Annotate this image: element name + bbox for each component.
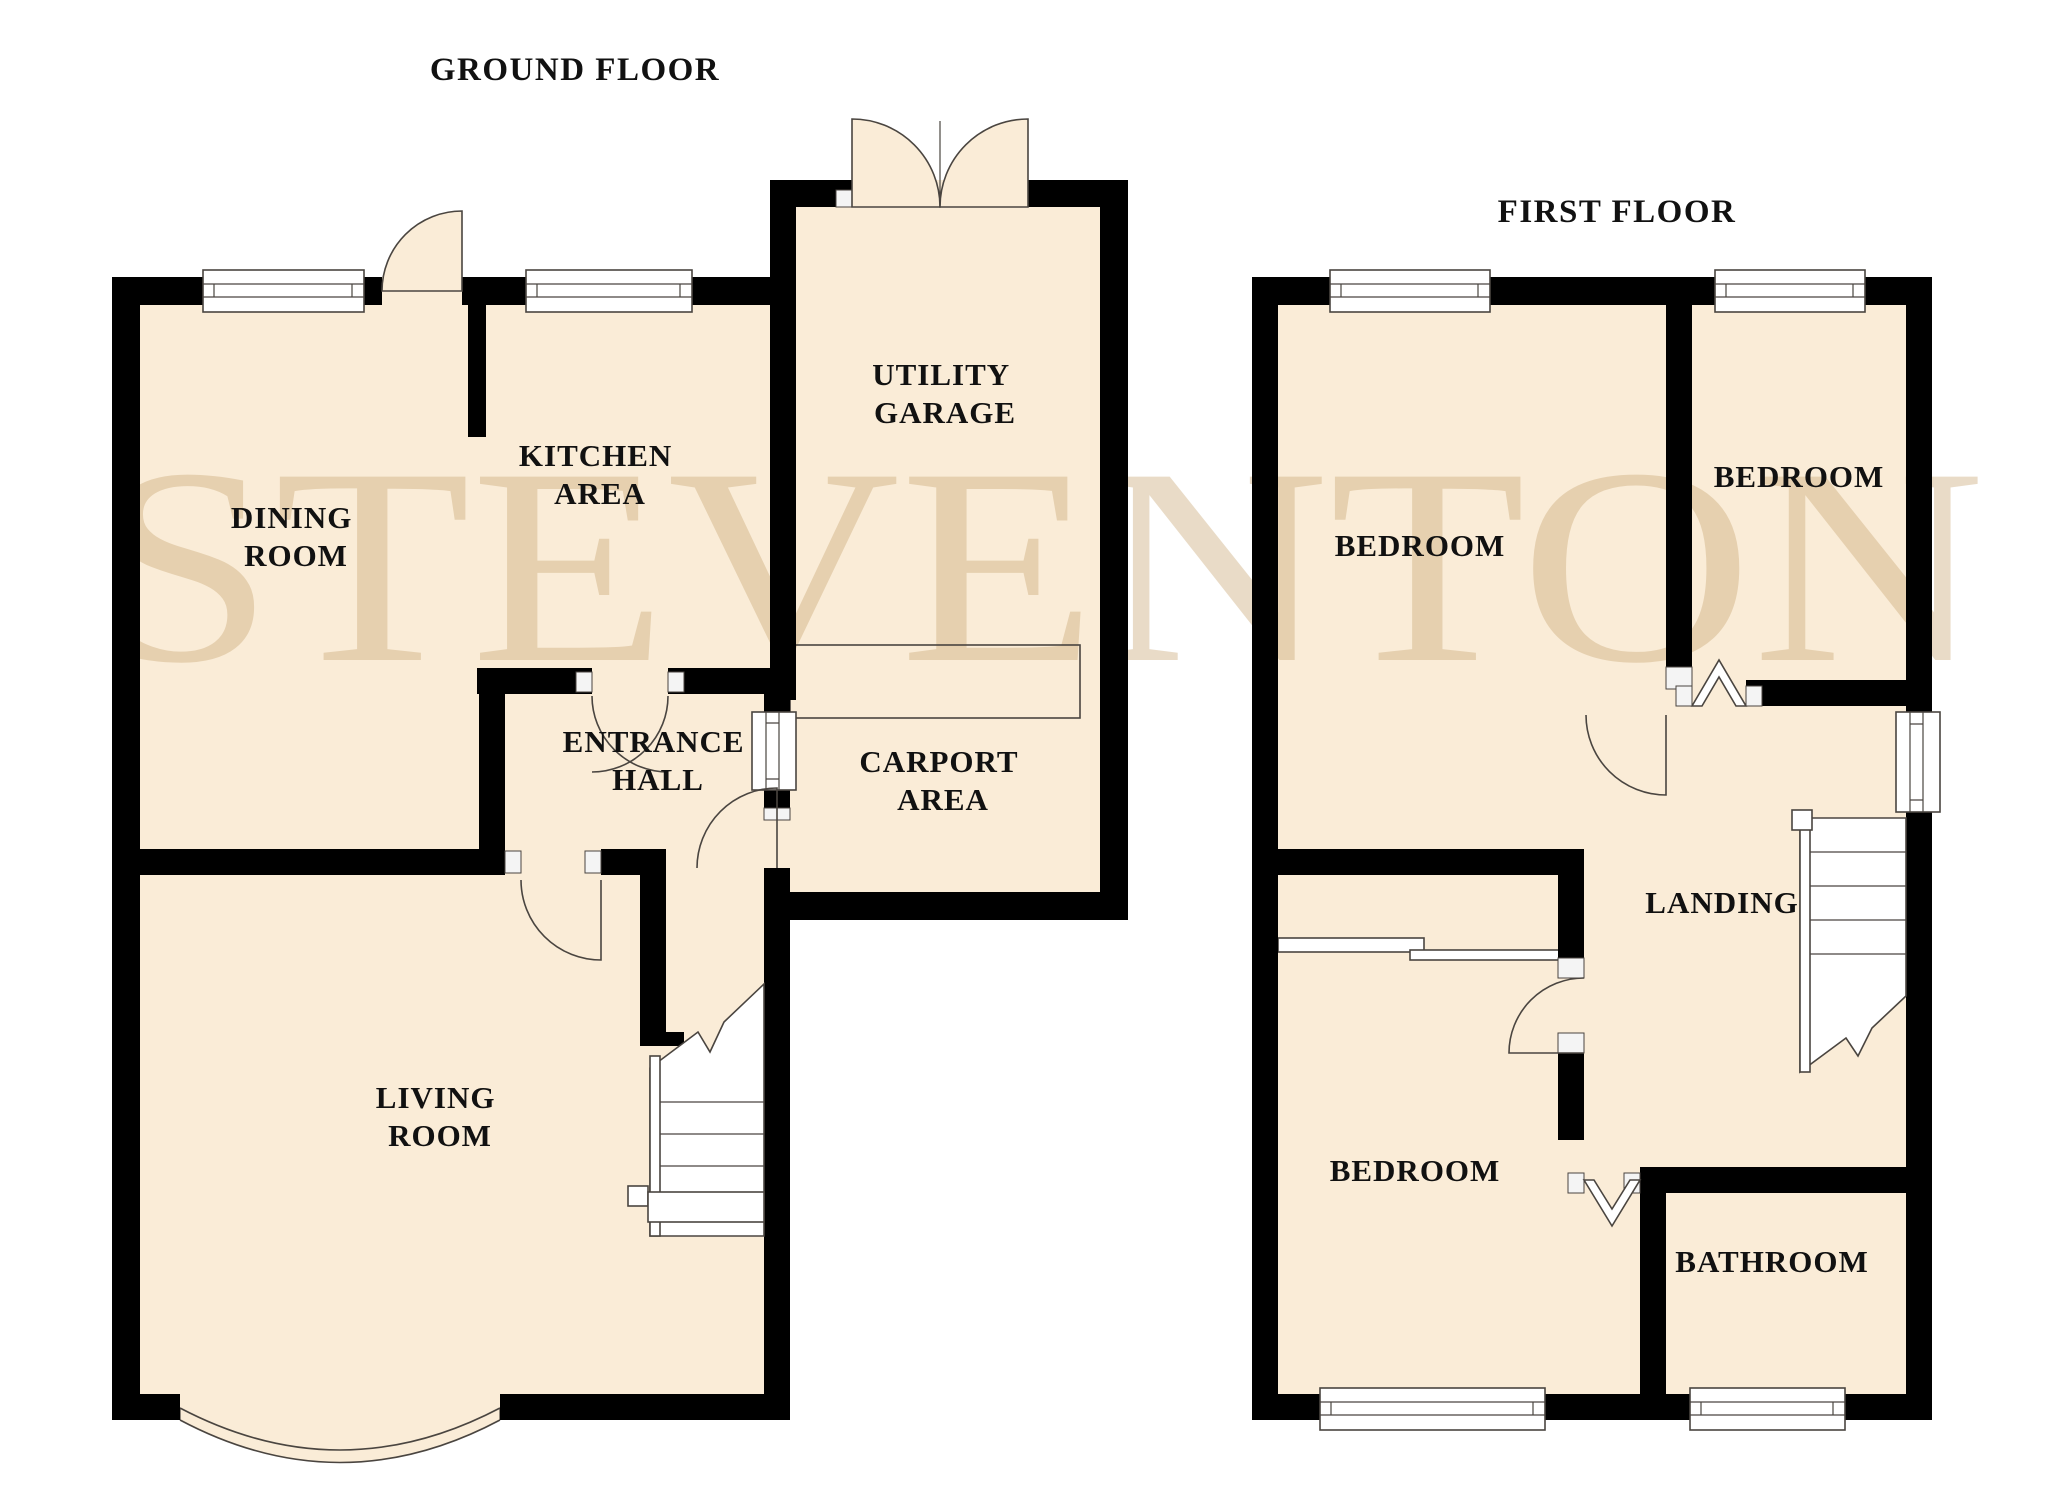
- window-dining-top: [203, 270, 364, 312]
- window-hall-front: [752, 712, 796, 790]
- wall: [1252, 849, 1558, 875]
- room-label-bedroom-top-right: BEDROOM: [1714, 459, 1885, 494]
- wall: [112, 849, 505, 875]
- wall: [477, 668, 592, 694]
- wall: [479, 694, 505, 875]
- first-floor-title: FIRST FLOOR: [1498, 194, 1737, 230]
- fill-bay-window: [180, 1394, 500, 1463]
- stair-rail: [1800, 826, 1810, 1072]
- jamb: [576, 672, 592, 692]
- jamb: [585, 851, 601, 873]
- window-kitchen-top: [526, 270, 692, 312]
- window-bedroom-tl-top: [1330, 270, 1490, 312]
- floorplan-drawing: STEVENTON: [0, 0, 2048, 1489]
- wall: [1640, 1167, 1666, 1420]
- wall: [462, 277, 526, 305]
- wall: [112, 1394, 180, 1420]
- window-bedroom-tr-top: [1715, 270, 1865, 312]
- wall: [770, 180, 796, 700]
- wall: [1490, 277, 1715, 305]
- wall: [1746, 680, 1906, 706]
- wall: [1640, 1167, 1906, 1193]
- wall: [640, 875, 666, 1046]
- wall: [601, 849, 666, 875]
- jamb: [1558, 1033, 1584, 1053]
- wall: [1558, 1053, 1584, 1140]
- jamb: [1746, 686, 1762, 706]
- wall: [1252, 1394, 1320, 1420]
- watermark-text: STEVENTON: [95, 410, 1985, 721]
- wardrobe-ledge-1: [1278, 938, 1424, 952]
- room-label-bedroom-top-left: BEDROOM: [1335, 528, 1506, 563]
- wardrobe-ledge-2: [1410, 950, 1560, 960]
- door-arc-garage-left: [852, 119, 940, 207]
- wall: [764, 868, 790, 892]
- wall: [1845, 1394, 1932, 1420]
- room-label-bathroom: BATHROOM: [1675, 1244, 1868, 1279]
- jamb: [505, 851, 521, 873]
- wall: [692, 277, 770, 305]
- window-bedroom-bottom: [1320, 1388, 1545, 1430]
- jamb: [1558, 958, 1584, 978]
- wall: [1100, 180, 1128, 920]
- wall: [1906, 277, 1932, 1420]
- room-label-landing: LANDING: [1645, 885, 1798, 920]
- wall: [764, 892, 790, 1420]
- wall: [1558, 849, 1584, 958]
- floorplan-canvas: STEVENTON: [0, 0, 2048, 1489]
- door-arc-dining-entry: [382, 211, 462, 291]
- window-landing-right: [1896, 712, 1940, 812]
- door-arc-garage-right: [940, 119, 1028, 207]
- wall: [640, 1032, 684, 1046]
- stair-newel: [1792, 810, 1812, 830]
- wall: [112, 277, 140, 1420]
- wall: [468, 305, 486, 437]
- wall: [500, 1394, 790, 1420]
- stair-newel: [628, 1186, 648, 1206]
- wall: [1545, 1394, 1690, 1420]
- jamb: [668, 672, 684, 692]
- ground-floor-title: GROUND FLOOR: [430, 52, 720, 88]
- jamb: [1568, 1173, 1584, 1193]
- jamb: [1676, 686, 1692, 706]
- window-bathroom-bottom: [1690, 1388, 1845, 1430]
- stair-bottom-step: [648, 1192, 764, 1222]
- wall: [364, 277, 382, 305]
- wall: [1666, 305, 1692, 667]
- wall: [764, 892, 1128, 920]
- jamb: [836, 190, 852, 207]
- room-label-bedroom-bottom: BEDROOM: [1330, 1153, 1501, 1188]
- wall: [1252, 277, 1278, 1420]
